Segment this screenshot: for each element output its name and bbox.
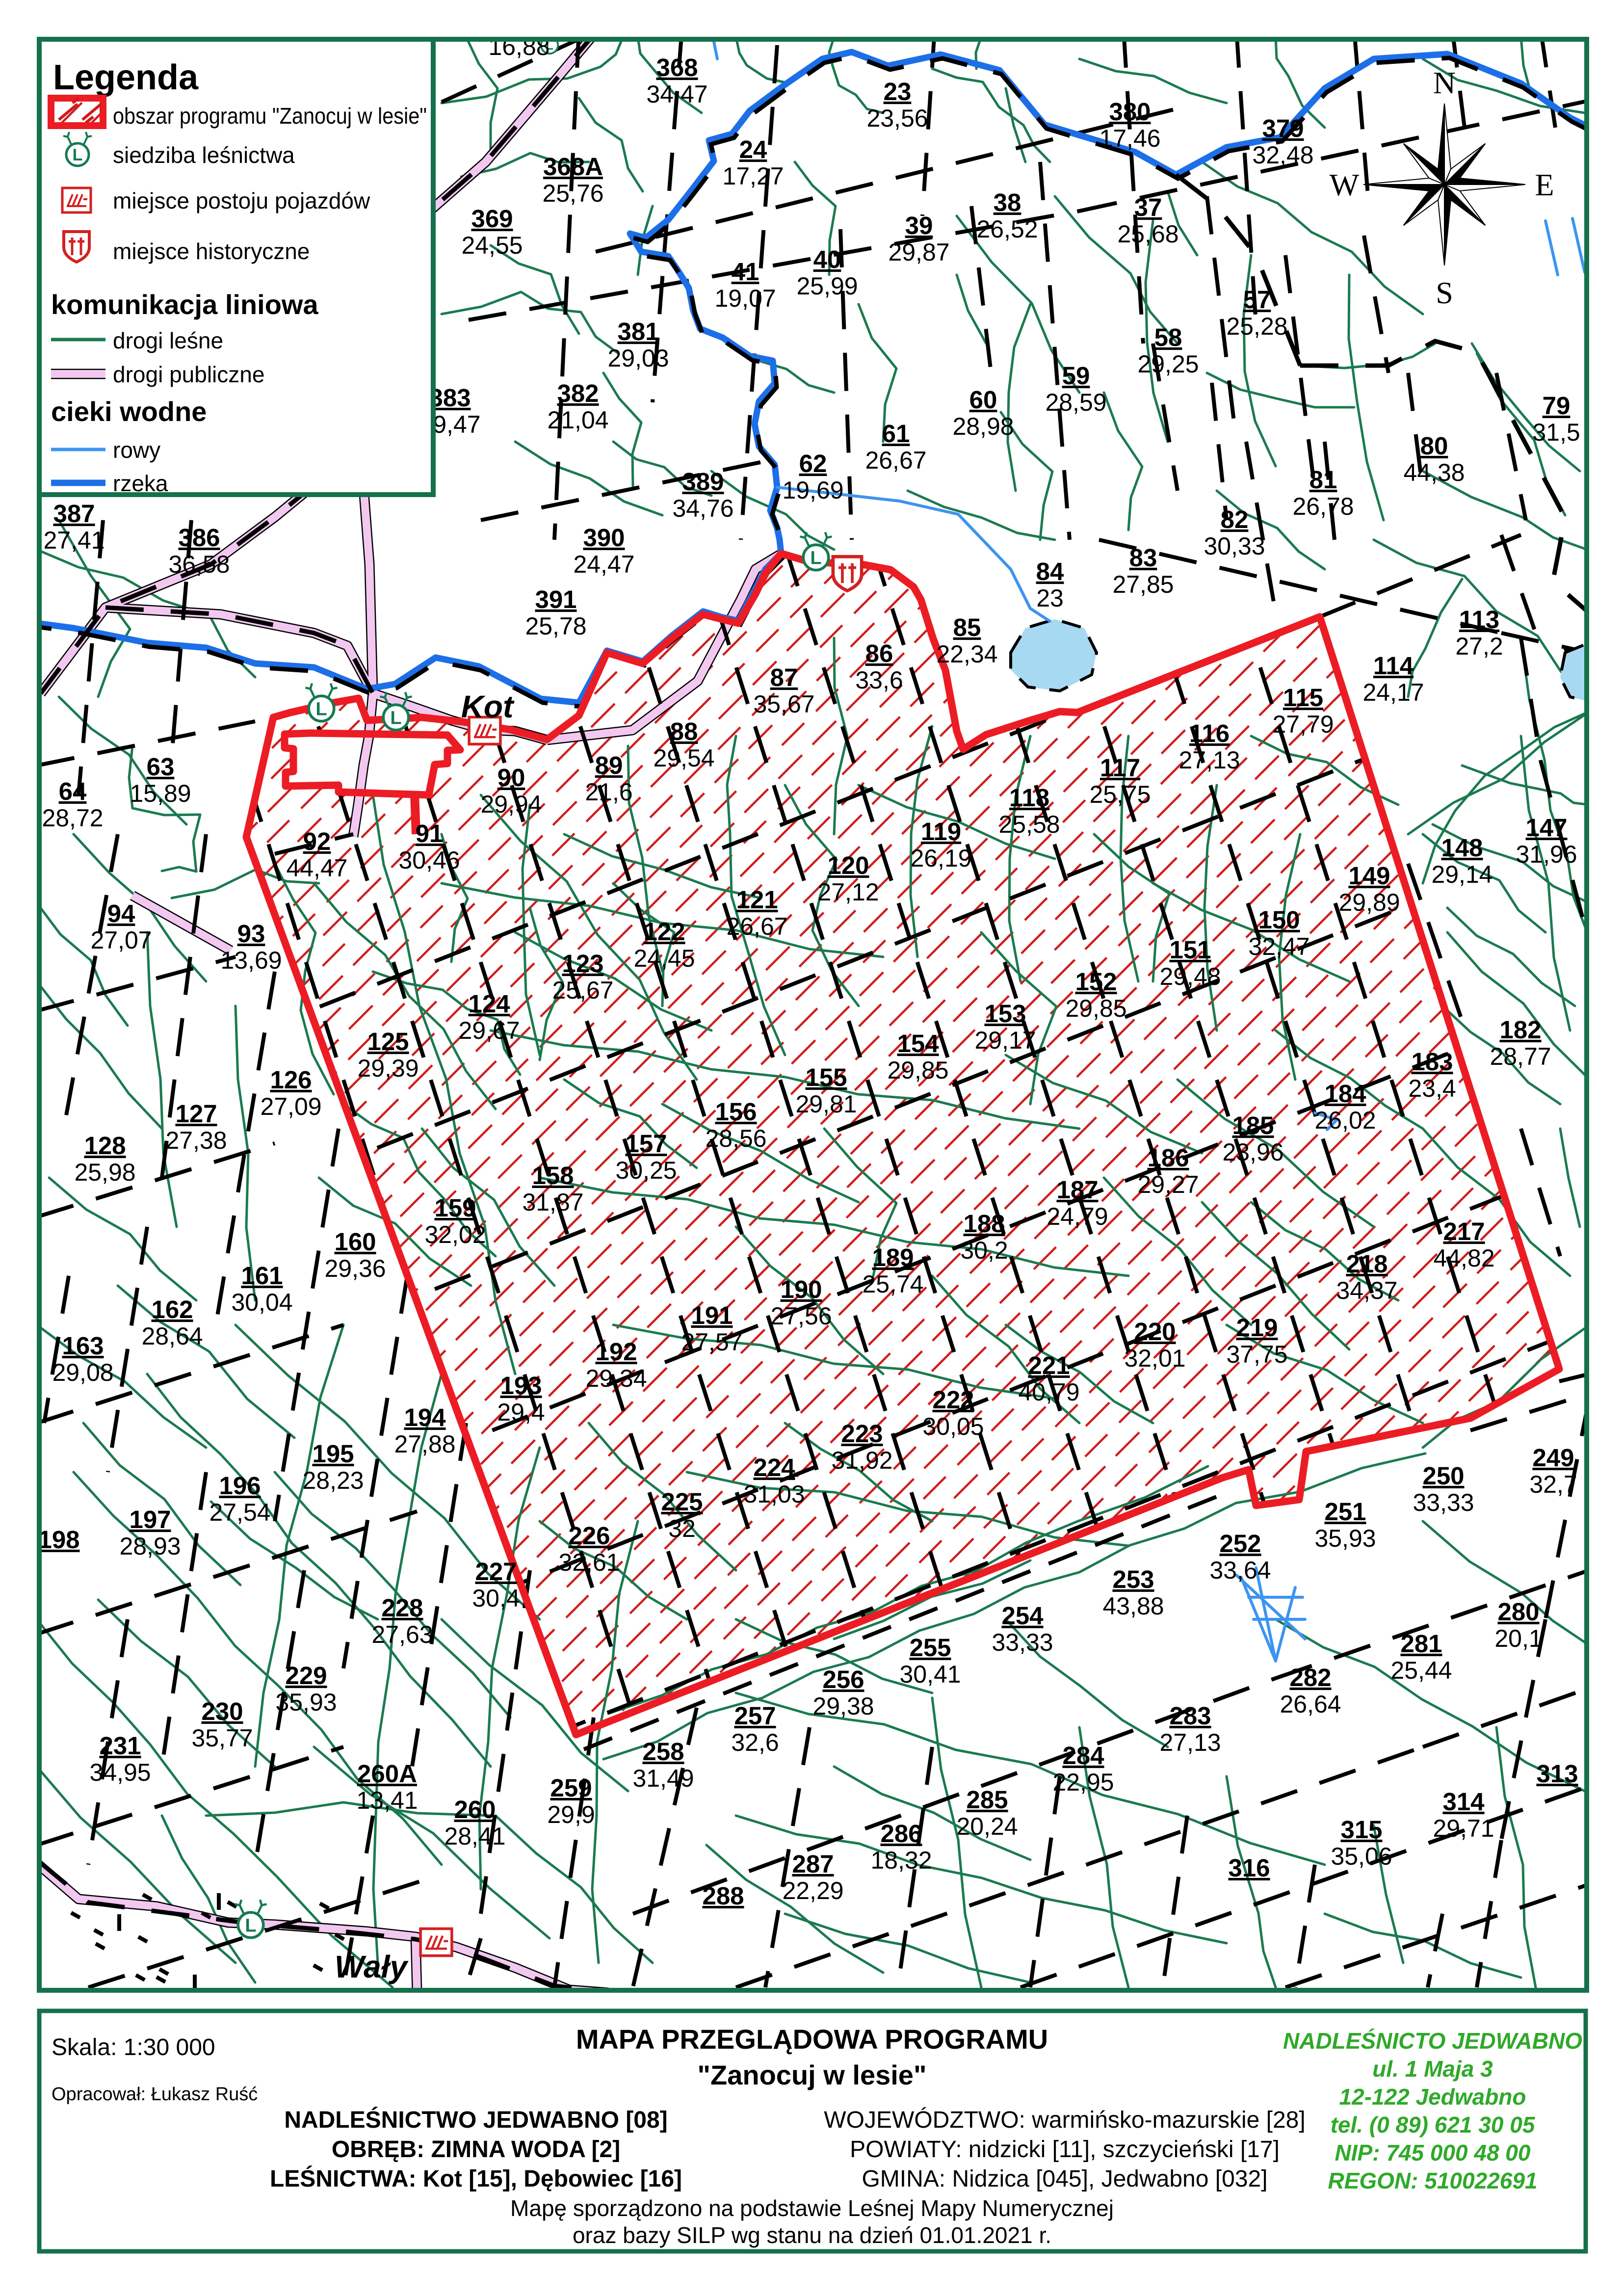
svg-text:24,47: 24,47 [573,551,634,578]
svg-text:39: 39 [905,211,933,239]
svg-text:62: 62 [799,449,827,477]
svg-text:114: 114 [1373,652,1414,680]
svg-text:127: 127 [175,1100,217,1128]
svg-text:387: 387 [53,500,95,528]
svg-text:87: 87 [770,663,798,691]
svg-text:31,92: 31,92 [831,1447,892,1474]
svg-text:13,69: 13,69 [220,947,282,974]
svg-text:84: 84 [1036,557,1064,585]
svg-text:231: 231 [99,1732,141,1760]
svg-text:90: 90 [497,764,525,792]
svg-text:29,4: 29,4 [497,1399,545,1426]
svg-text:28,72: 28,72 [42,804,103,832]
svg-text:313: 313 [1536,1760,1578,1788]
svg-text:W: W [1330,167,1360,202]
svg-text:28,23: 28,23 [302,1467,364,1494]
svg-text:GMINA: Nidzica [045], Jedwabno: GMINA: Nidzica [045], Jedwabno [032] [862,2166,1267,2192]
svg-text:287: 287 [792,1850,834,1878]
svg-text:189: 189 [872,1243,914,1271]
svg-text:125: 125 [367,1028,409,1056]
svg-text:L: L [810,548,821,568]
svg-text:29,85: 29,85 [1065,995,1126,1022]
svg-text:128: 128 [84,1132,126,1160]
svg-text:31,49: 31,49 [632,1765,694,1792]
svg-text:226: 226 [568,1522,610,1550]
svg-text:POWIATY: nidzicki [11], szczyc: POWIATY: nidzicki [11], szczycieński [17… [850,2137,1280,2163]
svg-text:37,75: 37,75 [1226,1341,1287,1368]
svg-text:198: 198 [38,1526,79,1554]
svg-text:cieki wodne: cieki wodne [51,396,207,427]
svg-text:159: 159 [434,1194,476,1222]
svg-text:26,02: 26,02 [1314,1107,1376,1134]
svg-text:24,17: 24,17 [1362,679,1424,706]
svg-text:32,61: 32,61 [558,1549,620,1576]
svg-text:22,95: 22,95 [1052,1768,1114,1796]
svg-text:32,02: 32,02 [424,1221,486,1248]
svg-text:17,46: 17,46 [1099,125,1160,152]
svg-text:218: 218 [1346,1250,1387,1278]
svg-text:196: 196 [219,1472,261,1500]
svg-text:25,68: 25,68 [1117,220,1178,248]
svg-text:113: 113 [1459,606,1499,633]
svg-text:rowy: rowy [113,437,160,463]
svg-text:28,93: 28,93 [119,1532,181,1560]
svg-text:32,7: 32,7 [1529,1471,1577,1498]
svg-text:379: 379 [1262,114,1304,142]
svg-text:tel. (0 89) 621 30 05: tel. (0 89) 621 30 05 [1331,2112,1536,2138]
svg-text:26,67: 26,67 [726,913,787,940]
svg-text:26,78: 26,78 [1292,493,1354,520]
svg-text:223: 223 [841,1420,883,1448]
svg-text:217: 217 [1443,1217,1485,1245]
svg-text:188: 188 [963,1210,1005,1238]
svg-text:29,38: 29,38 [812,1692,874,1720]
svg-text:rzeka: rzeka [113,471,168,496]
svg-text:drogi publiczne: drogi publiczne [113,362,264,387]
svg-text:126: 126 [270,1066,312,1094]
svg-text:29,94: 29,94 [480,791,542,818]
svg-text:26,67: 26,67 [865,447,926,474]
svg-text:227: 227 [475,1557,517,1585]
svg-text:"Zanocuj w lesie": "Zanocuj w lesie" [697,2059,926,2090]
svg-text:35,93: 35,93 [1314,1525,1376,1552]
svg-text:59: 59 [1062,362,1090,390]
svg-text:61: 61 [882,420,910,448]
svg-text:27,13: 27,13 [1159,1729,1221,1756]
svg-text:25,78: 25,78 [525,612,586,640]
svg-text:161: 161 [241,1262,283,1290]
svg-text:20,1: 20,1 [1494,1625,1542,1652]
svg-text:15,89: 15,89 [130,780,191,807]
svg-text:29,87: 29,87 [888,238,949,266]
svg-text:193: 193 [500,1372,542,1399]
svg-text:25,74: 25,74 [862,1270,923,1298]
svg-text:33,64: 33,64 [1209,1557,1271,1584]
svg-text:29,67: 29,67 [458,1017,520,1044]
svg-text:149: 149 [1348,862,1390,890]
svg-text:386: 386 [178,524,220,552]
svg-text:NADLEŚNICTO JEDWABNO: NADLEŚNICTO JEDWABNO [1283,2028,1582,2054]
svg-text:44,38: 44,38 [1403,459,1465,486]
svg-text:17,27: 17,27 [722,162,784,190]
svg-text:Skala: 1:30 000: Skala: 1:30 000 [52,2034,215,2060]
svg-text:23,4: 23,4 [1408,1075,1456,1102]
svg-text:26,64: 26,64 [1280,1690,1341,1718]
svg-text:29,08: 29,08 [52,1359,113,1386]
svg-text:282: 282 [1289,1663,1331,1691]
svg-text:22,29: 22,29 [782,1877,843,1904]
svg-text:368A: 368A [543,153,603,181]
svg-text:30,25: 30,25 [615,1157,677,1184]
svg-text:155: 155 [805,1063,847,1091]
svg-text:249: 249 [1532,1444,1574,1472]
svg-text:28,64: 28,64 [141,1322,203,1350]
svg-text:30,05: 30,05 [922,1413,984,1440]
svg-text:43,88: 43,88 [1102,1592,1164,1620]
svg-text:153: 153 [984,1000,1026,1028]
svg-text:24: 24 [739,135,767,163]
svg-text:26,52: 26,52 [976,215,1038,243]
svg-text:27,07: 27,07 [90,926,152,954]
svg-text:222: 222 [932,1386,974,1414]
svg-text:368: 368 [656,53,698,81]
svg-text:27,79: 27,79 [1272,711,1334,738]
svg-text:19,07: 19,07 [714,285,776,312]
svg-text:28,41: 28,41 [444,1822,505,1850]
svg-text:158: 158 [532,1161,574,1189]
svg-text:30,04: 30,04 [231,1289,292,1316]
svg-text:40,79: 40,79 [1018,1378,1079,1406]
svg-text:19,69: 19,69 [782,476,843,504]
svg-text:35,93: 35,93 [275,1689,337,1716]
svg-text:12-122 Jedwabno: 12-122 Jedwabno [1339,2084,1526,2110]
svg-text:41: 41 [732,258,759,286]
svg-text:29,14: 29,14 [1431,861,1492,888]
svg-text:24,45: 24,45 [633,945,695,972]
svg-text:32,48: 32,48 [1252,141,1313,169]
svg-text:31,87: 31,87 [522,1188,583,1216]
svg-text:27,54: 27,54 [209,1499,270,1526]
svg-text:116: 116 [1189,719,1230,747]
svg-text:25,58: 25,58 [998,811,1060,838]
svg-text:60: 60 [969,386,997,414]
svg-text:94: 94 [107,899,135,927]
svg-text:29,27: 29,27 [1137,1171,1199,1198]
svg-text:Kot: Kot [461,689,515,724]
svg-text:30,41: 30,41 [899,1661,961,1688]
svg-text:154: 154 [897,1029,939,1057]
svg-text:251: 251 [1324,1498,1366,1526]
svg-text:280: 280 [1497,1598,1539,1626]
svg-text:NIP: 745 000 48 00: NIP: 745 000 48 00 [1335,2140,1531,2165]
svg-text:119: 119 [921,818,961,845]
svg-text:S: S [1436,275,1453,310]
svg-text:23: 23 [1036,584,1064,612]
svg-text:63: 63 [147,753,175,781]
svg-text:284: 284 [1062,1742,1104,1769]
svg-text:23: 23 [884,78,912,106]
svg-text:28,59: 28,59 [1045,389,1106,416]
svg-text:27,09: 27,09 [260,1093,321,1120]
svg-text:29,9: 29,9 [547,1801,595,1828]
svg-text:219: 219 [1236,1314,1278,1342]
svg-text:32,6: 32,6 [731,1729,779,1756]
svg-text:316: 316 [1228,1854,1270,1882]
svg-text:123: 123 [562,950,603,977]
svg-text:157: 157 [625,1130,667,1158]
svg-text:230: 230 [201,1697,243,1725]
svg-text:27,56: 27,56 [770,1302,832,1330]
svg-text:33,33: 33,33 [1413,1489,1474,1516]
svg-text:36,58: 36,58 [168,551,230,578]
svg-text:27,63: 27,63 [371,1621,433,1648]
svg-text:ul. 1 Maja 3: ul. 1 Maja 3 [1372,2056,1493,2082]
svg-text:Wały: Wały [335,1949,409,1984]
svg-text:369: 369 [471,205,513,233]
svg-text:91: 91 [416,819,444,847]
svg-text:OBRĘB: ZIMNA WODA [2]: OBRĘB: ZIMNA WODA [2] [332,2137,620,2163]
svg-text:260A: 260A [357,1760,417,1788]
svg-text:25,44: 25,44 [1390,1657,1452,1684]
svg-text:255: 255 [909,1634,951,1662]
svg-text:381: 381 [617,317,659,345]
svg-text:Mapę sporządzono na podstawie: Mapę sporządzono na podstawie Leśnej Map… [510,2195,1114,2221]
svg-text:27,2: 27,2 [1455,633,1503,660]
svg-text:21,6: 21,6 [585,778,632,806]
svg-text:79: 79 [1543,392,1571,420]
svg-text:283: 283 [1169,1702,1211,1730]
svg-text:drogi leśne: drogi leśne [113,328,223,353]
svg-text:WOJEWÓDZTWO: warmińsko-mazursk: WOJEWÓDZTWO: warmińsko-mazurskie [28] [824,2107,1305,2133]
svg-text:38: 38 [994,188,1021,216]
svg-text:25,76: 25,76 [542,180,603,207]
svg-text:224: 224 [753,1453,795,1481]
svg-text:191: 191 [691,1301,733,1329]
svg-text:228: 228 [381,1594,423,1622]
svg-text:24,55: 24,55 [461,232,523,259]
svg-text:28,56: 28,56 [705,1125,766,1152]
svg-text:44,82: 44,82 [1433,1244,1494,1272]
svg-text:REGON: 510022691: REGON: 510022691 [1328,2168,1537,2193]
svg-text:oraz bazy SILP wg stanu na dzi: oraz bazy SILP wg stanu na dzień 01.01.2… [573,2222,1051,2248]
svg-text:390: 390 [583,524,625,552]
svg-text:151: 151 [1169,936,1211,964]
svg-text:115: 115 [1283,684,1323,712]
svg-text:29,54: 29,54 [653,744,714,772]
svg-text:25,99: 25,99 [796,272,858,300]
svg-text:281: 281 [1400,1630,1442,1658]
svg-text:29,25: 29,25 [1137,350,1199,378]
svg-text:30,46: 30,46 [398,846,460,874]
svg-text:31,96: 31,96 [1516,841,1577,868]
svg-text:57: 57 [1243,286,1271,314]
svg-text:185: 185 [1232,1111,1274,1139]
svg-text:160: 160 [334,1228,376,1256]
svg-text:23,56: 23,56 [866,105,928,132]
svg-text:254: 254 [1001,1602,1044,1630]
svg-text:31,03: 31,03 [743,1480,805,1508]
svg-text:35,77: 35,77 [191,1724,253,1752]
svg-text:28,98: 28,98 [952,413,1014,440]
svg-text:124: 124 [468,990,510,1018]
svg-text:286: 286 [880,1820,922,1847]
svg-text:34,37: 34,37 [1336,1277,1397,1304]
svg-text:29,36: 29,36 [324,1255,386,1282]
svg-text:L: L [390,708,401,728]
svg-text:25,98: 25,98 [74,1159,135,1186]
svg-text:13,41: 13,41 [356,1787,418,1814]
svg-text:32,47: 32,47 [1248,933,1309,960]
svg-text:32: 32 [668,1515,696,1542]
svg-text:81: 81 [1309,466,1337,494]
svg-text:35,06: 35,06 [1331,1843,1392,1870]
svg-text:27,38: 27,38 [165,1127,227,1154]
svg-text:257: 257 [734,1702,776,1730]
svg-text:117: 117 [1100,754,1140,782]
svg-text:MAPA PRZEGLĄDOWA PROGRAMU: MAPA PRZEGLĄDOWA PROGRAMU [576,2024,1048,2055]
svg-text:29,39: 29,39 [357,1055,419,1082]
svg-text:komunikacja liniowa: komunikacja liniowa [51,289,318,320]
svg-text:260: 260 [454,1795,496,1823]
svg-text:27,88: 27,88 [394,1430,455,1458]
svg-text:31,5: 31,5 [1532,419,1580,446]
svg-text:24,79: 24,79 [1047,1203,1108,1230]
svg-text:389: 389 [682,468,724,496]
svg-text:156: 156 [715,1098,757,1126]
svg-text:27,41: 27,41 [43,527,105,554]
svg-text:29,85: 29,85 [887,1056,948,1084]
svg-text:35,67: 35,67 [753,690,814,718]
svg-text:27,12: 27,12 [817,878,879,906]
svg-text:82: 82 [1221,505,1249,533]
svg-text:89: 89 [595,751,623,779]
svg-text:184: 184 [1324,1080,1366,1108]
svg-text:195: 195 [312,1440,354,1468]
svg-text:92: 92 [303,827,331,855]
svg-text:siedziba leśnictwa: siedziba leśnictwa [113,142,295,168]
svg-text:21,04: 21,04 [547,406,608,434]
svg-text:121: 121 [736,886,778,914]
svg-text:182: 182 [1499,1016,1541,1044]
svg-text:86: 86 [865,639,893,667]
svg-text:221: 221 [1028,1351,1070,1379]
svg-text:27,13: 27,13 [1178,746,1240,774]
svg-text:148: 148 [1441,834,1483,862]
svg-text:162: 162 [151,1295,193,1323]
svg-text:150: 150 [1258,906,1300,934]
svg-text:58: 58 [1154,323,1182,351]
svg-text:L: L [315,699,327,719]
svg-text:314: 314 [1442,1788,1485,1816]
svg-text:83: 83 [1129,544,1157,572]
svg-text:40: 40 [813,245,841,273]
svg-text:34,95: 34,95 [89,1759,151,1786]
svg-text:288: 288 [702,1882,744,1910]
svg-text:44,47: 44,47 [286,854,347,882]
svg-text:29,17: 29,17 [974,1027,1036,1054]
svg-text:391: 391 [535,585,576,613]
svg-text:25,67: 25,67 [552,976,613,1004]
svg-text:190: 190 [780,1275,822,1303]
svg-text:163: 163 [62,1332,104,1360]
svg-text:30,4: 30,4 [472,1584,520,1612]
svg-text:256: 256 [822,1665,864,1693]
svg-text:29,03: 29,03 [607,344,669,372]
svg-text:252: 252 [1219,1530,1261,1557]
svg-text:29,48: 29,48 [1159,963,1221,990]
svg-text:192: 192 [595,1338,637,1366]
svg-text:93: 93 [237,920,265,948]
svg-text:28,77: 28,77 [1490,1043,1551,1070]
svg-text:29,34: 29,34 [585,1365,647,1392]
svg-text:34,76: 34,76 [672,495,733,522]
svg-text:229: 229 [285,1662,327,1689]
svg-text:29,89: 29,89 [1338,889,1400,916]
svg-text:285: 285 [966,1786,1008,1814]
svg-text:187: 187 [1056,1176,1098,1204]
svg-text:Legenda: Legenda [53,58,199,97]
svg-text:obszar programu "Zanocuj w les: obszar programu "Zanocuj w lesie" [113,103,427,129]
svg-text:29,71: 29,71 [1433,1815,1494,1842]
svg-text:LEŚNICTWA: Kot [15], Dębowiec: LEŚNICTWA: Kot [15], Dębowiec [16] [270,2165,682,2192]
svg-text:315: 315 [1340,1816,1382,1844]
svg-text:26,19: 26,19 [910,845,971,872]
svg-text:miejsce historyczne: miejsce historyczne [113,238,310,264]
svg-text:147: 147 [1525,814,1567,842]
svg-text:259: 259 [550,1774,592,1802]
svg-text:253: 253 [1112,1565,1154,1593]
svg-text:152: 152 [1075,968,1117,996]
svg-text:380: 380 [1109,98,1151,126]
svg-text:194: 194 [404,1403,446,1431]
svg-text:N: N [1433,65,1456,100]
svg-text:118: 118 [1009,784,1049,812]
svg-text:33,33: 33,33 [992,1629,1053,1656]
svg-text:186: 186 [1147,1144,1189,1172]
svg-text:258: 258 [642,1738,684,1766]
svg-text:80: 80 [1420,432,1448,460]
svg-text:20,24: 20,24 [956,1813,1018,1840]
svg-text:30,33: 30,33 [1204,532,1265,560]
svg-text:32,01: 32,01 [1124,1345,1185,1372]
svg-text:88: 88 [670,717,698,745]
svg-text:85: 85 [953,613,981,641]
svg-text:225: 225 [661,1488,703,1516]
svg-text:miejsce postoju pojazdów: miejsce postoju pojazdów [113,188,370,213]
svg-text:27,57: 27,57 [681,1328,742,1356]
svg-text:22,34: 22,34 [936,640,997,668]
svg-text:382: 382 [557,379,599,407]
svg-text:250: 250 [1422,1462,1464,1490]
svg-text:27,85: 27,85 [1112,571,1174,598]
svg-text:34,47: 34,47 [646,80,707,108]
svg-text:NADLEŚNICTWO JEDWABNO [08]: NADLEŚNICTWO JEDWABNO [08] [284,2106,667,2133]
svg-text:L: L [73,146,83,164]
svg-text:L: L [245,1915,256,1936]
svg-text:120: 120 [827,851,869,879]
svg-text:E: E [1535,167,1554,202]
svg-text:25,75: 25,75 [1089,781,1151,808]
svg-text:Opracował: Łukasz Ruść: Opracował: Łukasz Ruść [52,2084,258,2105]
svg-text:23,96: 23,96 [1222,1138,1283,1166]
svg-text:33,6: 33,6 [855,666,903,694]
svg-text:30,2: 30,2 [960,1237,1008,1264]
svg-text:37: 37 [1134,193,1162,221]
svg-text:197: 197 [129,1505,171,1533]
svg-text:25,28: 25,28 [1226,313,1287,340]
svg-text:183: 183 [1411,1048,1453,1076]
svg-text:29,81: 29,81 [795,1090,857,1118]
